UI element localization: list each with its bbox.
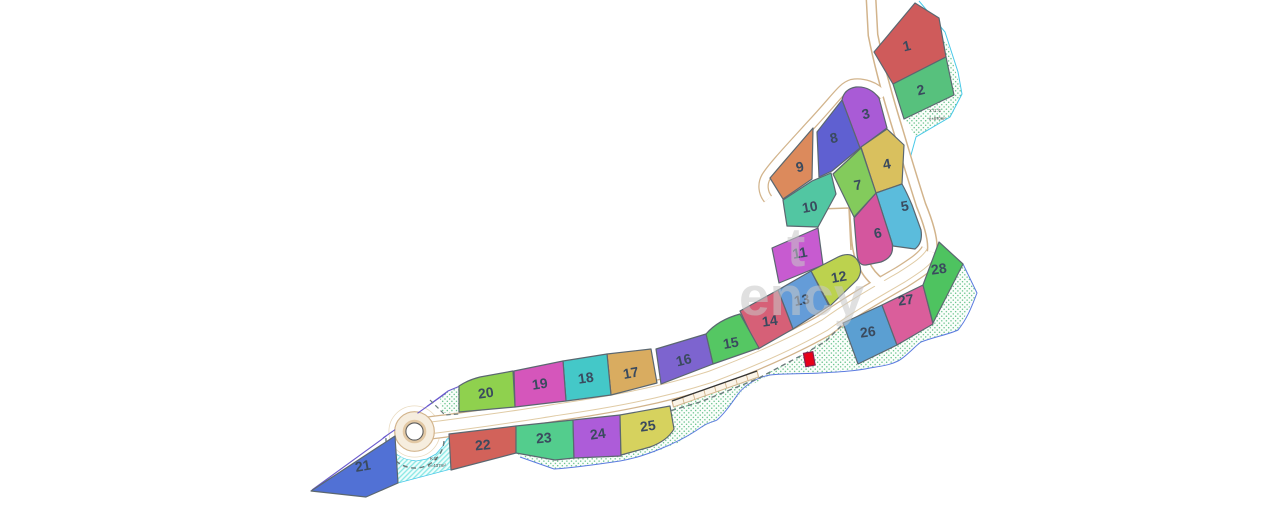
svg-text:25: 25 <box>639 417 657 435</box>
svg-text:21: 21 <box>354 456 372 474</box>
svg-text:18: 18 <box>577 369 595 387</box>
svg-text:e=870m²: e=870m² <box>929 116 946 121</box>
svg-text:ency: ency <box>739 265 865 327</box>
svg-text:e=437m²: e=437m² <box>428 463 446 468</box>
svg-text:K.E: K.E <box>430 456 437 461</box>
svg-text:20: 20 <box>477 384 495 402</box>
svg-text:27: 27 <box>897 291 915 309</box>
svg-text:17: 17 <box>622 363 640 381</box>
svg-text:22: 22 <box>474 436 491 453</box>
svg-text:28: 28 <box>930 260 948 278</box>
svg-text:X /1 /1: X /1 /1 <box>929 108 942 113</box>
svg-text:23: 23 <box>535 429 552 446</box>
svg-text:19: 19 <box>531 375 549 393</box>
svg-text:15: 15 <box>722 333 740 351</box>
svg-text:24: 24 <box>589 425 607 443</box>
svg-text:10: 10 <box>801 197 819 215</box>
